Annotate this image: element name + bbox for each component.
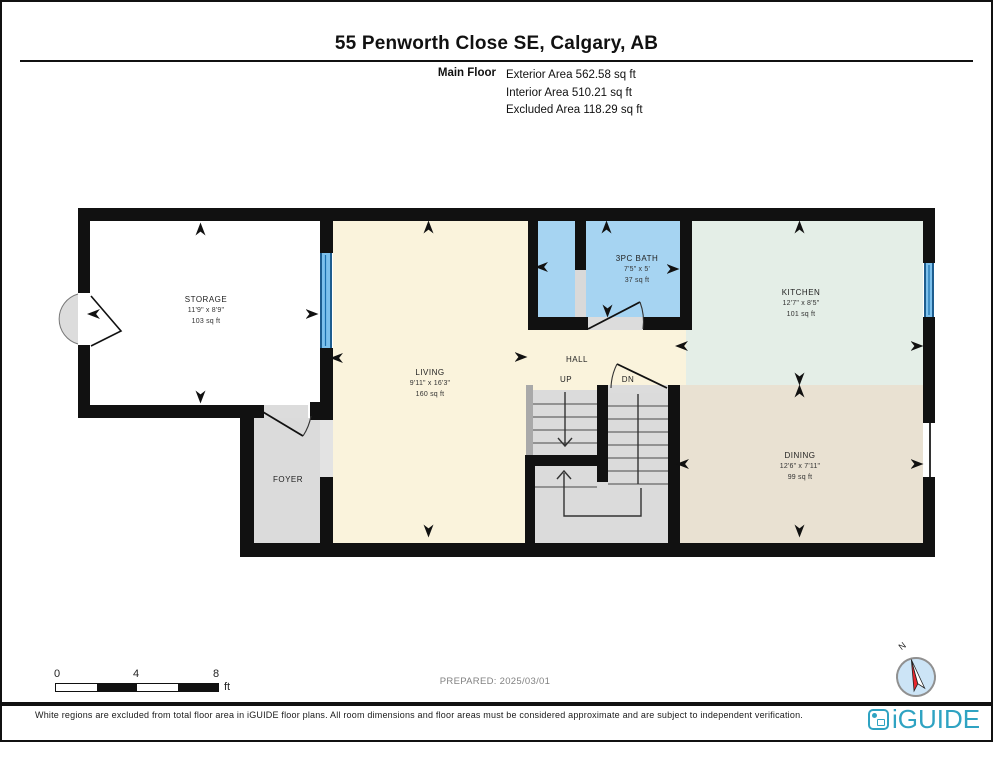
storage-area: 103 sq ft [185,316,227,327]
room-label-living: LIVING 9'11" x 16'3" 160 sq ft [410,367,450,400]
room-label-storage: STORAGE 11'9" x 8'9" 103 sq ft [185,294,227,327]
interior-area: Interior Area 510.21 sq ft [506,85,643,103]
page-border-bottom [0,740,993,742]
room-label-hall: HALL [566,355,588,364]
wall-right-mid [923,317,935,423]
scale-unit: ft [224,681,230,693]
iguide-camera-icon [868,709,889,730]
page-border-left [0,0,2,742]
kitchen-name: KITCHEN [782,287,821,298]
stairs-up-label: UP [560,375,572,384]
stair-up-rail [526,385,533,455]
wall-left-upper [78,208,90,293]
wall-bottom [240,543,935,557]
page-title: 55 Penworth Close SE, Calgary, AB [0,33,993,55]
storage-living-window [320,253,332,348]
wall-storage-right-lower [320,348,333,418]
wall-storage-bottom [78,405,264,418]
iguide-logo-text: iGUIDE [892,706,980,732]
stairs-dn-label: DN [622,375,635,384]
scale-tick-4: 4 [128,668,144,680]
wall-bath-left [528,208,538,330]
floor-plan-page: 55 Penworth Close SE, Calgary, AB Main F… [0,0,993,768]
kitchen-window [924,263,934,317]
wall-foyer-right [320,477,333,543]
wall-kitchen-left [680,208,692,330]
hall-floor [528,330,686,390]
scale-bar [55,683,219,692]
room-label-kitchen: KITCHEN 12'7" x 8'5" 101 sq ft [782,287,821,320]
foyer-living-doorway [320,420,333,477]
page-border-top [0,0,993,2]
scale-tick-0: 0 [49,668,65,680]
living-name: LIVING [410,367,450,378]
exterior-area: Exterior Area 562.58 sq ft [506,67,643,85]
stair-up-flight [533,390,597,455]
room-label-foyer: FOYER [273,475,303,484]
dining-dims: 12'6" x 7'11" [780,461,820,472]
prepared-date: PREPARED: 2025/03/01 [385,676,605,687]
wall-stair-under-up [525,455,597,466]
bath-area: 37 sq ft [616,275,659,286]
stair-dn-threshold [608,385,668,393]
bath-dims: 7'5" x 5' [616,264,659,275]
storage-door-sweep [59,294,78,344]
wall-storage-right-upper [320,208,333,253]
floor-label: Main Floor [378,67,496,79]
floor-plan: STORAGE 11'9" x 8'9" 103 sq ft LIVING 9'… [0,0,993,768]
wall-top [78,208,935,221]
dining-patio-door-line [929,423,931,477]
scale-tick-8: 8 [208,668,224,680]
room-label-dining: DINING 12'6" x 7'11" 99 sq ft [780,450,820,483]
wall-foyer-left [240,405,254,557]
wall-right-upper [923,208,935,263]
footer-divider [0,702,993,706]
excluded-area: Excluded Area 118.29 sq ft [506,102,643,120]
bath-name: 3PC BATH [616,253,659,264]
bath-glass-partition [575,270,586,317]
title-underline [20,60,973,62]
wall-bath-mid [575,208,586,270]
kitchen-area: 101 sq ft [782,309,821,320]
room-label-bath: 3PC BATH 7'5" x 5' 37 sq ft [616,253,659,286]
iguide-logo: iGUIDE [868,706,980,732]
floor-area-stats: Exterior Area 562.58 sq ft Interior Area… [506,67,643,120]
storage-name: STORAGE [185,294,227,305]
bath-door-threshold [588,317,643,330]
living-dims: 9'11" x 16'3" [410,378,450,389]
dining-name: DINING [780,450,820,461]
foyer-entry-threshold [264,405,308,418]
wall-stair-mid [597,385,608,482]
kitchen-dims: 12'7" x 8'5" [782,298,821,309]
disclaimer-text: White regions are excluded from total fl… [35,710,835,720]
stair-dn-flight [608,393,668,485]
wall-bath-bottom-left [528,317,588,330]
dining-area: 99 sq ft [780,472,820,483]
wall-right-lower [923,477,935,557]
living-area: 160 sq ft [410,389,450,400]
wall-stair-left [525,455,535,543]
storage-dims: 11'9" x 8'9" [185,305,227,316]
compass-icon [884,646,948,710]
